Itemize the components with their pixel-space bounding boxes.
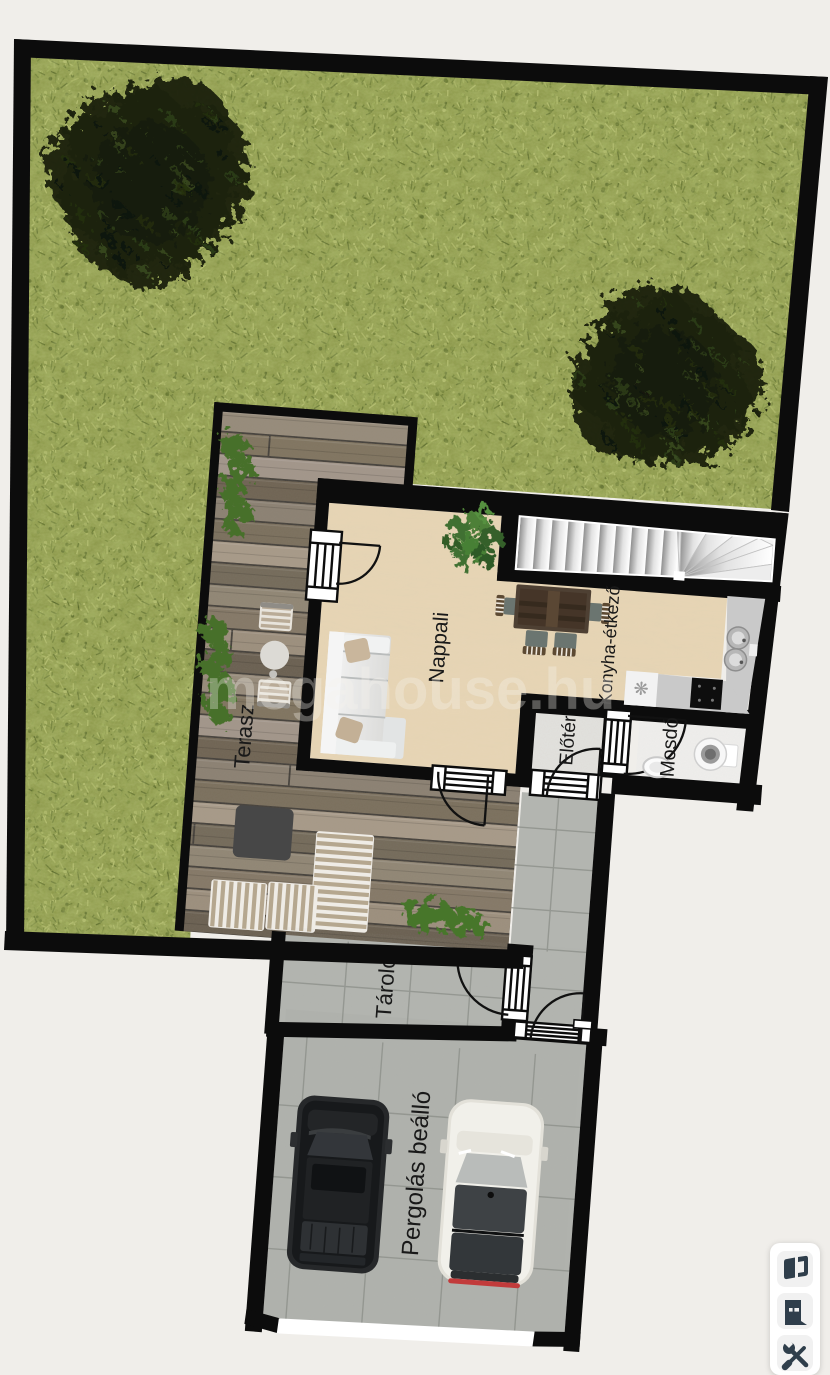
svg-text:❋: ❋ [633, 678, 650, 699]
svg-text:Tároló: Tároló [371, 955, 401, 1019]
svg-text:Előtér: Előtér [556, 714, 581, 766]
svg-text:megahouse.hu: megahouse.hu [206, 657, 615, 722]
svg-text:Mosdó: Mosdó [657, 716, 683, 778]
